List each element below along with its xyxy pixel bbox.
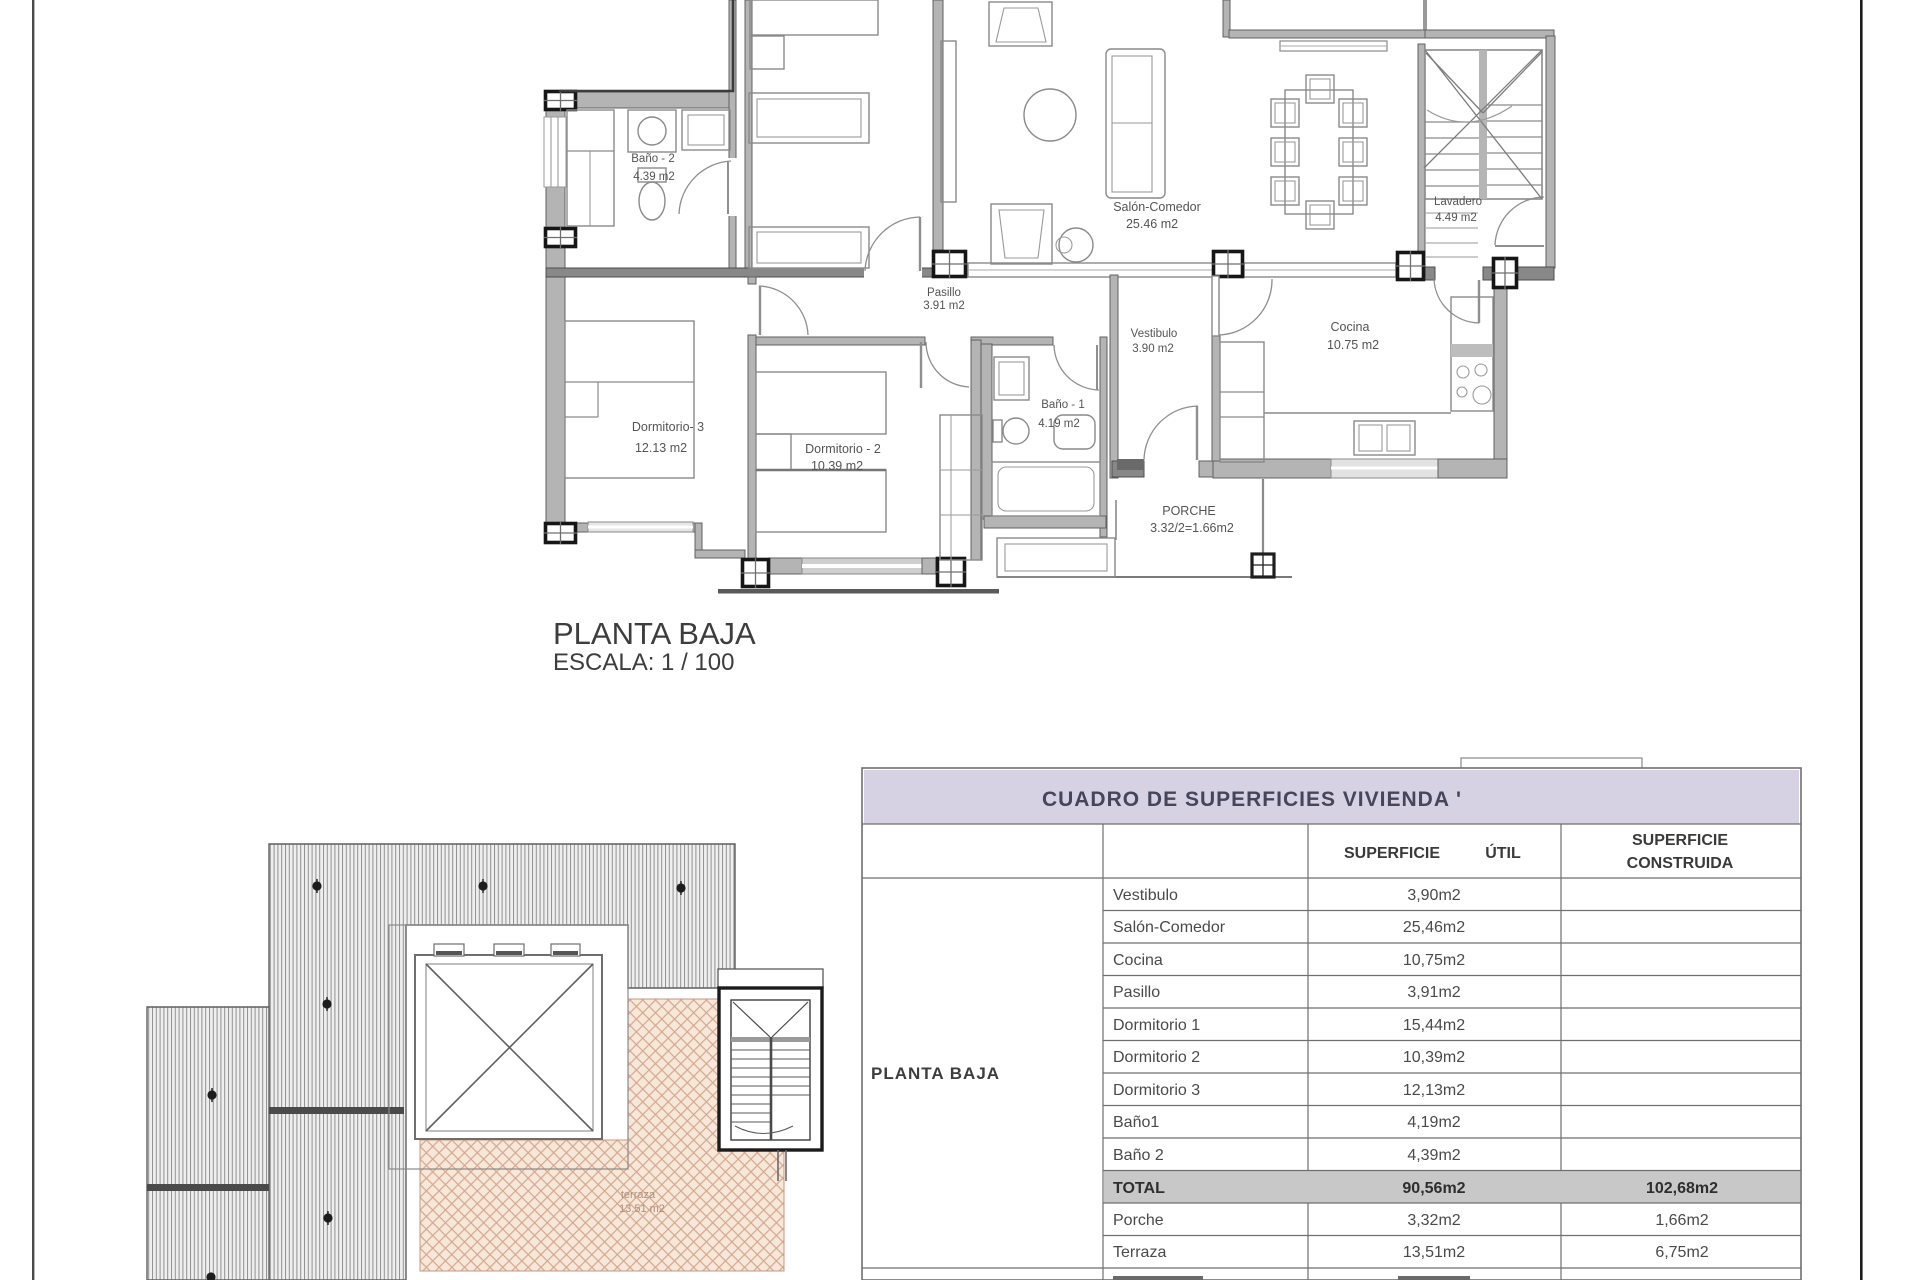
- svg-text:Lavadero: Lavadero: [1434, 196, 1482, 208]
- svg-text:SUPERFICIE: SUPERFICIE: [1344, 845, 1440, 862]
- svg-text:3,32m2: 3,32m2: [1407, 1212, 1460, 1229]
- svg-text:CONSTRUIDA: CONSTRUIDA: [1627, 855, 1734, 872]
- svg-text:12.13 m2: 12.13 m2: [635, 441, 687, 455]
- svg-text:Dormitorio 1: Dormitorio 1: [1113, 1017, 1200, 1034]
- svg-text:Dormitorio- 3: Dormitorio- 3: [632, 420, 704, 434]
- svg-text:15,44m2: 15,44m2: [1403, 1017, 1465, 1034]
- svg-text:3.32/2=1.66m2: 3.32/2=1.66m2: [1150, 521, 1234, 535]
- svg-text:Dormitorio - 2: Dormitorio - 2: [805, 442, 881, 456]
- svg-text:SUPERFICIE: SUPERFICIE: [1632, 832, 1728, 849]
- svg-text:ESCALA: 1 / 100: ESCALA: 1 / 100: [553, 649, 734, 676]
- svg-text:Vestibulo: Vestibulo: [1113, 887, 1178, 904]
- svg-text:Baño - 1: Baño - 1: [1041, 399, 1084, 411]
- svg-text:4,19m2: 4,19m2: [1407, 1114, 1460, 1131]
- svg-text:Dormitorio 2: Dormitorio 2: [1113, 1049, 1200, 1066]
- svg-text:terraza: terraza: [621, 1189, 656, 1201]
- svg-text:6,75m2: 6,75m2: [1655, 1244, 1708, 1261]
- svg-text:PLANTA BAJA: PLANTA BAJA: [553, 616, 756, 651]
- svg-text:1,66m2: 1,66m2: [1655, 1212, 1708, 1229]
- svg-text:PLANTA BAJA: PLANTA BAJA: [871, 1064, 1000, 1083]
- svg-text:Salón-Comedor: Salón-Comedor: [1113, 919, 1226, 936]
- svg-text:ÚTIL: ÚTIL: [1485, 843, 1521, 862]
- svg-text:3,91m2: 3,91m2: [1407, 984, 1460, 1001]
- svg-text:10.39 m2: 10.39 m2: [811, 459, 863, 473]
- svg-text:Porche: Porche: [1113, 1212, 1164, 1229]
- svg-text:12,13m2: 12,13m2: [1403, 1082, 1465, 1099]
- svg-text:4,39m2: 4,39m2: [1407, 1147, 1460, 1164]
- svg-text:Dormitorio 3: Dormitorio 3: [1113, 1082, 1200, 1099]
- svg-text:3.91 m2: 3.91 m2: [923, 300, 965, 312]
- svg-text:Baño1: Baño1: [1113, 1114, 1159, 1131]
- svg-text:TOTAL: TOTAL: [1113, 1180, 1165, 1197]
- svg-text:102,68m2: 102,68m2: [1646, 1180, 1718, 1197]
- svg-text:CUADRO DE SUPERFICIES VIVIEND: CUADRO DE SUPERFICIES VIVIENDA ': [1042, 788, 1462, 811]
- svg-text:10,39m2: 10,39m2: [1403, 1049, 1465, 1066]
- svg-text:25.46 m2: 25.46 m2: [1126, 217, 1178, 231]
- svg-text:Salón-Comedor: Salón-Comedor: [1113, 200, 1201, 214]
- svg-text:Cocina: Cocina: [1113, 952, 1163, 969]
- svg-text:13.51 m2: 13.51 m2: [619, 1203, 665, 1215]
- svg-text:10,75m2: 10,75m2: [1403, 952, 1465, 969]
- svg-text:Baño - 2: Baño - 2: [631, 153, 674, 165]
- svg-text:90,56m2: 90,56m2: [1402, 1180, 1465, 1197]
- svg-text:PORCHE: PORCHE: [1162, 504, 1215, 518]
- svg-text:10.75 m2: 10.75 m2: [1327, 338, 1379, 352]
- svg-text:4.19 m2: 4.19 m2: [1038, 418, 1080, 430]
- svg-text:Baño 2: Baño 2: [1113, 1147, 1164, 1164]
- svg-text:4.49 m2: 4.49 m2: [1435, 212, 1477, 224]
- svg-text:Vestibulo: Vestibulo: [1131, 328, 1178, 340]
- svg-text:Cocina: Cocina: [1331, 320, 1370, 334]
- svg-text:13,51m2: 13,51m2: [1403, 1244, 1465, 1261]
- svg-text:Pasillo: Pasillo: [1113, 984, 1160, 1001]
- svg-text:3.90 m2: 3.90 m2: [1132, 343, 1174, 355]
- svg-text:4.39 m2: 4.39 m2: [633, 171, 675, 183]
- svg-text:Pasillo: Pasillo: [927, 287, 961, 299]
- svg-text:25,46m2: 25,46m2: [1403, 919, 1465, 936]
- svg-text:3,90m2: 3,90m2: [1407, 887, 1460, 904]
- svg-text:Terraza: Terraza: [1113, 1244, 1166, 1261]
